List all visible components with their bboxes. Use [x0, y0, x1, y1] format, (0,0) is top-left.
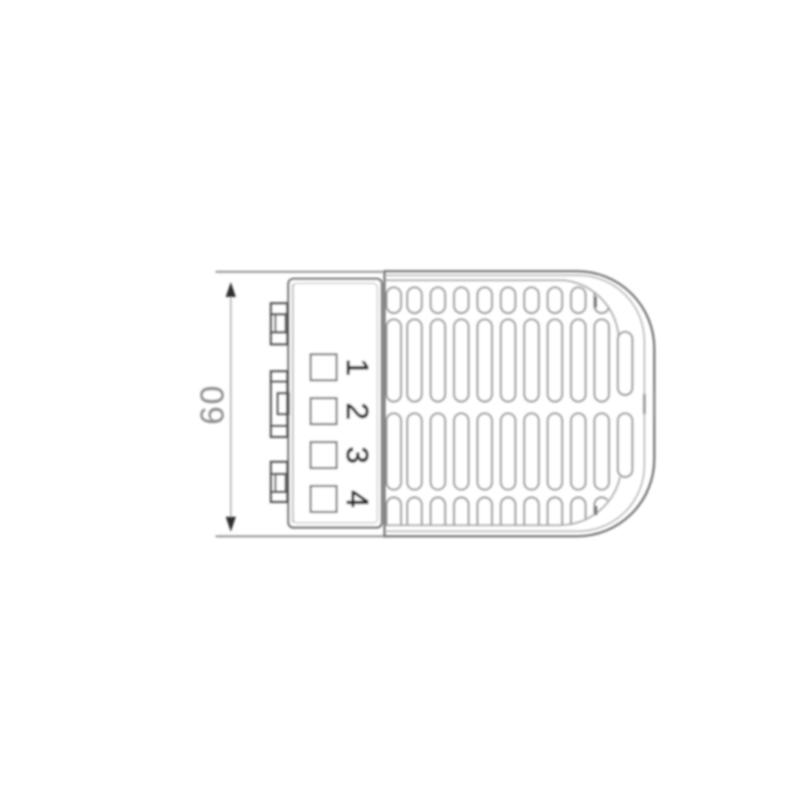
svg-text:3: 3	[340, 446, 375, 463]
svg-text:4: 4	[340, 490, 375, 507]
svg-text:2: 2	[340, 403, 375, 420]
svg-text:1: 1	[340, 359, 375, 376]
svg-text:60: 60	[195, 384, 232, 425]
